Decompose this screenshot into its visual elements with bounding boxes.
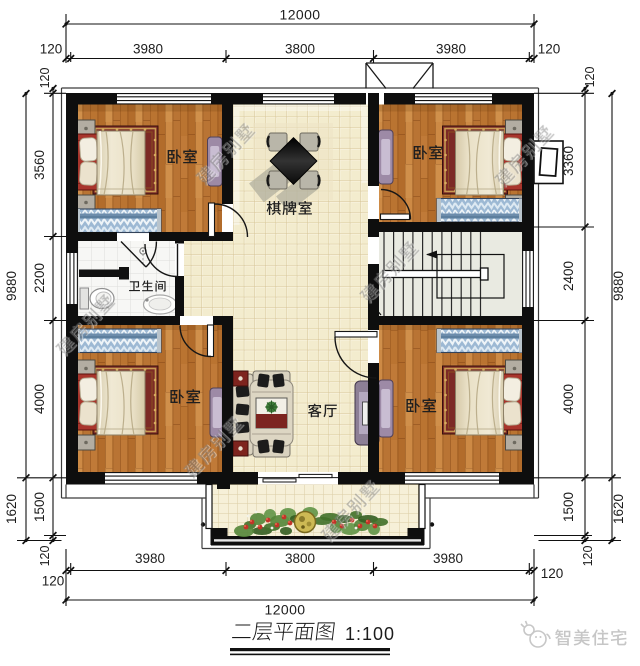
svg-text:2400: 2400 (561, 261, 576, 291)
svg-text:4000: 4000 (561, 384, 576, 414)
svg-text:3980: 3980 (133, 42, 163, 57)
svg-text:1500: 1500 (32, 492, 47, 522)
svg-text:120: 120 (42, 574, 65, 589)
svg-text:120: 120 (38, 68, 52, 89)
svg-text:1620: 1620 (611, 494, 626, 524)
svg-text:120: 120 (538, 42, 561, 57)
svg-text:3800: 3800 (285, 42, 315, 57)
svg-text:120: 120 (38, 546, 52, 567)
svg-text:2200: 2200 (32, 263, 47, 293)
svg-text:3560: 3560 (32, 150, 47, 180)
svg-text:120: 120 (581, 546, 595, 567)
svg-text:12000: 12000 (280, 7, 321, 23)
svg-text:1:100: 1:100 (345, 624, 395, 644)
svg-text:3980: 3980 (433, 551, 463, 566)
svg-text:120: 120 (40, 42, 63, 57)
svg-text:1500: 1500 (561, 492, 576, 522)
svg-text:3980: 3980 (135, 551, 165, 566)
svg-text:3980: 3980 (436, 42, 466, 57)
svg-text:120: 120 (583, 67, 597, 88)
svg-text:12000: 12000 (265, 602, 306, 618)
svg-text:3800: 3800 (285, 551, 315, 566)
svg-text:1620: 1620 (4, 494, 19, 524)
svg-text:3360: 3360 (561, 146, 576, 176)
svg-text:120: 120 (541, 566, 564, 581)
svg-text:4000: 4000 (32, 384, 47, 414)
svg-text:9880: 9880 (4, 271, 19, 301)
svg-text:9880: 9880 (611, 271, 626, 301)
